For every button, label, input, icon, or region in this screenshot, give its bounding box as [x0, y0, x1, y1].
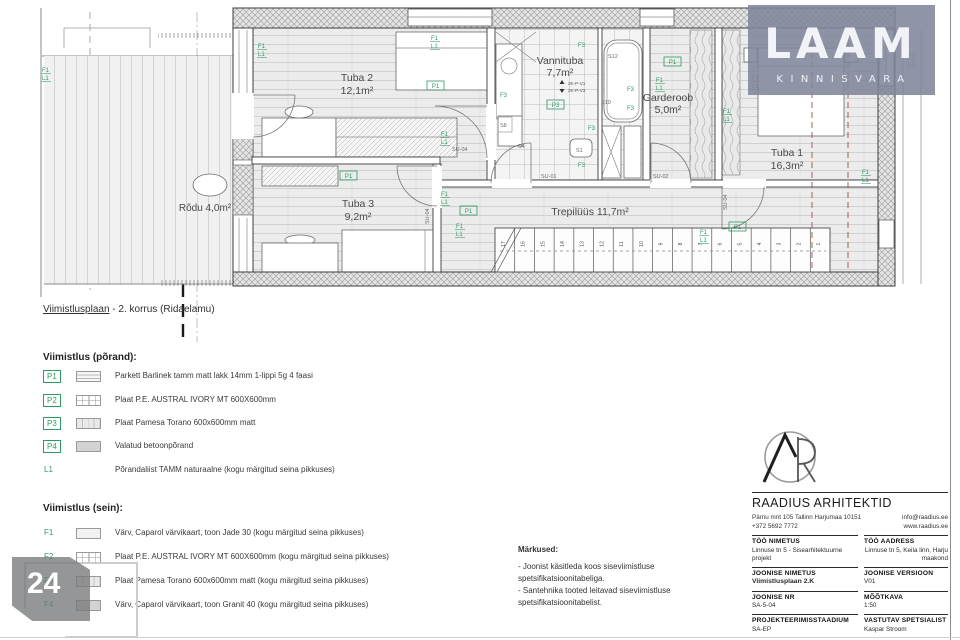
finish-desc: Parkett Barlinek tamm matt lakk 14mm 1-l…: [115, 371, 313, 380]
finish-tag: F3: [578, 43, 586, 49]
finish-swatch-concrete: [76, 441, 101, 452]
room-area-tuba1: 16,3m²: [771, 160, 804, 172]
finish-swatch-tile: [76, 552, 101, 563]
finish-tag: P3: [552, 103, 560, 109]
svg-text:2: 2: [796, 242, 802, 245]
sheet-border-bottom: [0, 637, 960, 638]
company-email: info@raadius.ee: [902, 513, 948, 522]
balcony: [44, 56, 233, 286]
room-area-tuba2: 12,1m²: [341, 85, 374, 97]
finish-desc: Plaat Pamesa Torano 600x600mm matt (kogu…: [115, 576, 368, 585]
page-number: 24: [27, 567, 60, 601]
closet-tuba1: [722, 30, 740, 175]
finish-tag: L1: [258, 52, 265, 58]
door-code: SU-02: [653, 174, 669, 180]
wardrobe-tuba2: [336, 118, 457, 157]
tb-row: JOONISE NRSA-5-04MÕÕTKAVA1:50: [752, 591, 948, 614]
finish-swatch-tile: [76, 395, 101, 406]
tb-field-value: V01: [864, 578, 948, 586]
finish-desc: Valatud betoonpõrand: [115, 441, 193, 450]
tb-row: TÖÖ NIMETUSLinnuse tn 5 - Sisearhitektuu…: [752, 535, 948, 567]
vent-code: 2K-P-V1: [568, 81, 586, 86]
finish-desc: Värv, Caparol värvikaart, toon Jade 30 (…: [115, 528, 364, 537]
tb-field: TÖÖ NIMETUSLinnuse tn 5 - Sisearhitektuu…: [752, 535, 858, 567]
room-name-tuba2: Tuba 2: [341, 72, 373, 84]
notes-heading: Märkused:: [518, 545, 696, 554]
svg-text:1: 1: [816, 242, 822, 245]
railing-hatch: [160, 280, 233, 286]
svg-text:6: 6: [718, 242, 724, 245]
window-north: [408, 9, 492, 26]
svg-text:9: 9: [659, 242, 665, 245]
drawing-title-rest: - 2. korrus (Ridaelamu): [110, 304, 215, 315]
vent-code: 2K-P-V3: [568, 88, 586, 93]
note-line: - Santehnika tooted leitavad siseviimist…: [518, 585, 696, 609]
room-label-trepiluus: Trepilüüs 11,7m²: [551, 206, 629, 218]
finish-tag: F1: [431, 36, 439, 42]
finish-tag: F1: [456, 224, 464, 230]
finish-tag: P1: [432, 84, 440, 90]
tb-field: JOONISE NIMETUSViimistlusplaan 2.K: [752, 567, 858, 591]
svg-text:11: 11: [619, 241, 625, 246]
door-code: SU-04: [723, 194, 729, 210]
floor-legend-heading: Viimistlus (põrand):: [43, 352, 137, 363]
finish-desc: Värv, Caparol värvikaart, toon Granit 40…: [115, 600, 368, 609]
legend-row-p4: P4 Valatud betoonpõrand: [43, 440, 743, 455]
finish-desc: Plaat P.E. AUSTRAL IVORY MT 600X600mm (k…: [115, 552, 389, 561]
tb-field-label: TÖÖ NIMETUS: [752, 538, 858, 545]
laam-logo-tagline: KINNISVARA: [776, 74, 911, 85]
finish-tag: L1: [441, 140, 448, 146]
room-area-garderoob: 5,0m²: [655, 104, 682, 116]
tb-field: JOONISE VERSIOONV01: [864, 567, 948, 591]
tb-field: MÕÕTKAVA1:50: [864, 591, 948, 614]
finish-swatch-tile-matt: [76, 418, 101, 429]
finish-tag: F1: [441, 192, 449, 198]
note-line: - Joonist käsitleda koos siseviimistluse…: [518, 561, 696, 585]
door-code: SU-04: [425, 208, 431, 224]
finish-tag: L1: [441, 200, 448, 206]
tb-field: JOONISE NRSA-5-04: [752, 591, 858, 614]
legend-row-l1: L1 Põrandaliist TAMM naturaalne (kogu mä…: [43, 464, 743, 479]
finish-code-p1: P1: [43, 370, 61, 383]
company-phone: +372 5692 7772: [752, 522, 861, 531]
room-name-vannituba: Vannituba: [537, 55, 584, 67]
tb-field-value: Linnuse tn 5 - Sisearhitektuurne projekt: [752, 547, 858, 564]
tb-field-value: Linnuse tn 5, Keila linn, Harju maakond: [864, 547, 948, 564]
finish-desc: Põrandaliist TAMM naturaalne (kogu märgi…: [115, 465, 335, 474]
company-address: Pärnu mnt 105 Tallinn Harjumaa 10151: [752, 513, 861, 522]
room-name-tuba3: Tuba 3: [342, 198, 374, 210]
tb-field-label: VASTUTAV SPETSIALIST: [864, 617, 948, 624]
laam-logo: LAAM KINNISVARA: [748, 5, 935, 95]
finish-tag: P1: [734, 225, 742, 231]
company-name: RAADIUS ARHITEKTID: [752, 492, 948, 510]
finish-tag: F1: [656, 78, 664, 84]
architect-logo: [752, 424, 824, 490]
finish-tag: F1: [723, 109, 731, 115]
finish-code-l1: L1: [43, 464, 54, 476]
window-east: [879, 220, 894, 248]
finish-tag: F1: [258, 44, 266, 50]
finish-tag: F1: [441, 132, 449, 138]
tb-field-label: JOONISE NIMETUS: [752, 570, 858, 577]
company-website: www.raadius.ee: [902, 522, 948, 531]
finish-desc: Plaat Pamesa Torano 600x600mm matt: [115, 418, 255, 427]
finish-tag: F1: [700, 230, 708, 236]
room-name-garderoob: Garderoob: [643, 92, 693, 104]
legend-row-p1: P1 Parkett Barlinek tamm matt lakk 14mm …: [43, 370, 743, 385]
finish-code-p2: P2: [43, 394, 61, 407]
tb-field-label: TÖÖ AADRESS: [864, 538, 948, 545]
finish-tag: F3: [627, 106, 635, 112]
title-block: RAADIUS ARHITEKTID Pärnu mnt 105 Tallinn…: [752, 424, 948, 640]
bed-tuba3: [342, 230, 438, 272]
tb-field: TÖÖ AADRESSLinnuse tn 5, Keila linn, Har…: [864, 535, 948, 567]
window-north: [640, 9, 674, 26]
partition: [252, 157, 440, 164]
logo-peak-icon: [764, 435, 796, 482]
finish-tag: F3: [588, 126, 596, 132]
legend-row-p3: P3 Plaat Pamesa Torano 600x600mm matt: [43, 417, 743, 432]
tb-field-value: Kaspar Stroom: [864, 626, 948, 634]
tb-field-value: Viimistlusplaan 2.K: [752, 578, 858, 587]
svg-text:4: 4: [757, 242, 763, 245]
neighbor-outline: [64, 28, 150, 48]
cabinet: [624, 126, 641, 178]
desk-tuba2: [262, 118, 336, 157]
exterior-wall-south: [233, 272, 895, 286]
svg-text:16: 16: [521, 241, 527, 247]
legend-row-f1: F1 Värv, Caparol värvikaart, toon Jade 3…: [43, 527, 743, 542]
svg-text:15: 15: [540, 241, 546, 247]
finish-tag: F1: [42, 68, 50, 74]
tb-field-label: PROJEKTEERIMISSTAADIUM: [752, 617, 858, 624]
dresser-tuba3: [262, 243, 338, 272]
finish-tag: F3: [627, 87, 635, 93]
finish-tag: L1: [42, 76, 49, 82]
drawing-sheet: 1234567891011121314151617: [0, 0, 960, 640]
wardrobe-tuba3: [262, 166, 338, 186]
stairs: 1234567891011121314151617: [491, 228, 830, 272]
finish-swatch-parquet: [76, 371, 101, 382]
tb-field-value: 1:50: [864, 602, 948, 610]
tb-field: PROJEKTEERIMISSTAADIUMSA-EP: [752, 614, 858, 637]
balcony-deck: [44, 56, 233, 284]
bathtub-code: S12: [608, 54, 618, 60]
tb-field-label: MÕÕTKAVA: [864, 594, 948, 601]
railing-hatch: [158, 33, 233, 38]
vanity-counter: [496, 44, 522, 118]
tb-field-label: JOONISE VERSIOON: [864, 570, 948, 577]
company-contact: Pärnu mnt 105 Tallinn Harjumaa 10151 +37…: [752, 513, 948, 531]
door-code: SU-04: [452, 147, 468, 153]
finish-tag: L1: [700, 238, 707, 244]
tb-field: VASTUTAV SPETSIALISTKaspar Stroom: [864, 614, 948, 637]
room-area-vannituba: 7,7m²: [547, 67, 574, 79]
svg-text:12: 12: [599, 241, 605, 247]
tb-row: JOONISE NIMETUSViimistlusplaan 2.KJOONIS…: [752, 567, 948, 591]
drawing-title: Viimistlusplaan - 2. korrus (Ridaelamu): [43, 304, 215, 315]
washing-machine: [498, 116, 522, 146]
fixture-code: S8: [500, 123, 507, 129]
tb-field-label: JOONISE NR: [752, 594, 858, 601]
tb-grid: TÖÖ NIMETUSLinnuse tn 5 - Sisearhitektuu…: [752, 535, 948, 640]
toilet-code: S1: [576, 148, 583, 154]
finish-code-p4: P4: [43, 440, 61, 453]
laam-logo-wordmark: LAAM: [764, 19, 918, 68]
finish-tag: L1: [862, 178, 869, 184]
finish-swatch-paint: [76, 528, 101, 539]
svg-text:8: 8: [678, 242, 684, 245]
legend-row-p2: P2 Plaat P.E. AUSTRAL IVORY MT 600X600mm: [43, 394, 743, 409]
svg-text:13: 13: [580, 241, 586, 247]
closet-garderoob: [690, 30, 712, 178]
svg-text:10: 10: [639, 241, 645, 247]
room-label-rodu: Rõdu 4,0m²: [179, 203, 232, 214]
bathtub: [604, 40, 642, 122]
tb-field-value: SA-5-04: [752, 602, 858, 610]
finish-tag: F3: [500, 93, 508, 99]
sheet-border-right: [950, 0, 951, 640]
finish-tag: P1: [465, 209, 473, 215]
finish-tag: L1: [431, 44, 438, 50]
balcony-chair: [193, 174, 227, 196]
door-code: SU-01: [541, 174, 557, 180]
tb-row: PROJEKTEERIMISSTAADIUMSA-EPVASTUTAV SPET…: [752, 614, 948, 637]
room-area-tuba3: 9,2m²: [345, 211, 372, 223]
finish-code-p3: P3: [43, 417, 61, 430]
notes-block: Märkused: - Joonist käsitleda koos sisev…: [518, 545, 696, 609]
finish-tag: P1: [345, 174, 353, 180]
finish-tag: F1: [862, 170, 870, 176]
wall-legend-heading: Viimistlus (sein):: [43, 503, 123, 514]
svg-text:14: 14: [560, 241, 566, 247]
drawing-title-main: Viimistlusplaan: [43, 304, 110, 315]
svg-text:3: 3: [777, 242, 783, 245]
finish-tag: L1: [656, 86, 663, 92]
finish-tag: P1: [669, 60, 677, 66]
floor-plan: 1234567891011121314151617: [0, 0, 960, 345]
svg-text:5: 5: [737, 242, 743, 245]
finish-code-f1: F1: [43, 527, 54, 539]
finish-desc: Plaat P.E. AUSTRAL IVORY MT 600X600mm: [115, 395, 276, 404]
finish-tag: L1: [456, 232, 463, 238]
fixture-code: S4: [518, 144, 525, 150]
finish-tag: F3: [578, 163, 586, 169]
fixture-code: S10: [601, 100, 611, 106]
finish-tag: L1: [723, 117, 730, 123]
page-number-badge: 24: [12, 557, 90, 621]
room-name-tuba1: Tuba 1: [771, 147, 803, 159]
tb-field-value: SA-EP: [752, 626, 858, 634]
